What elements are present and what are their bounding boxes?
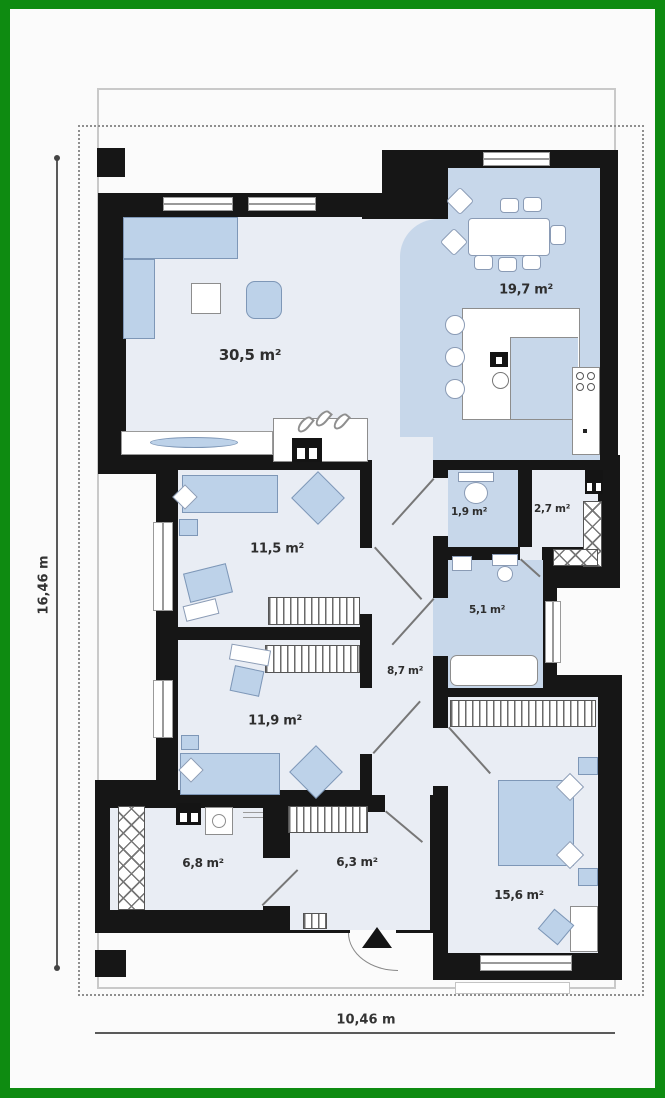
plan-paper: 30,5 m² 19,7 m² 11,5 m² 1,9 m² 2,7 m² 5,… — [10, 9, 655, 1088]
dimension-endpoint — [54, 155, 60, 161]
dimension-line-vertical — [56, 158, 58, 968]
dimension-label-height: 16,46 m — [37, 555, 52, 614]
floor-plan-image: 30,5 m² 19,7 m² 11,5 m² 1,9 m² 2,7 m² 5,… — [0, 0, 665, 1098]
terrace-boundary-dotted — [78, 125, 644, 996]
dimension-label-width: 10,46 m — [336, 1013, 395, 1028]
dimension-endpoint — [54, 965, 60, 971]
dimension-line-horizontal — [95, 1032, 615, 1034]
